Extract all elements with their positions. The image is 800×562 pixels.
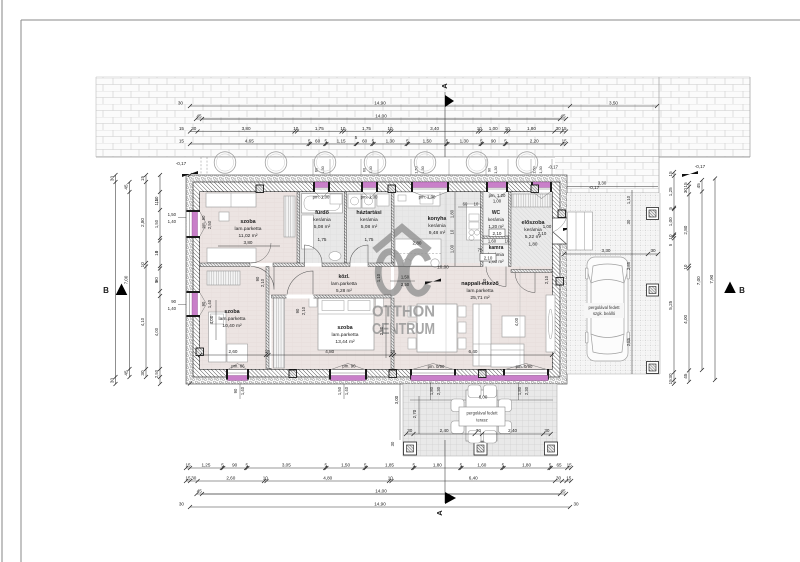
svg-text:2,10: 2,10 — [538, 231, 547, 236]
svg-text:2,80: 2,80 — [379, 326, 384, 335]
svg-text:1,50: 1,50 — [414, 165, 419, 173]
svg-text:1,00: 1,00 — [543, 224, 552, 229]
svg-text:15: 15 — [566, 476, 572, 481]
svg-text:90: 90 — [491, 139, 497, 144]
svg-text:45: 45 — [560, 114, 566, 119]
svg-text:10: 10 — [293, 126, 299, 131]
svg-text:45: 45 — [124, 184, 129, 190]
svg-text:5,28 m²: 5,28 m² — [336, 288, 352, 293]
svg-text:5: 5 — [549, 463, 552, 468]
svg-text:1,80: 1,80 — [433, 463, 442, 468]
svg-text:1,30: 1,30 — [460, 139, 469, 144]
svg-text:25,71 m²: 25,71 m² — [470, 295, 490, 301]
svg-text:10: 10 — [505, 126, 511, 131]
svg-text:6,40: 6,40 — [469, 476, 478, 481]
svg-text:45: 45 — [197, 489, 203, 494]
svg-text:2,30: 2,30 — [436, 386, 441, 395]
svg-text:4,65: 4,65 — [245, 139, 254, 144]
svg-text:2,10: 2,10 — [301, 306, 306, 315]
svg-text:WC: WC — [492, 210, 501, 216]
svg-text:pm. 90: pm. 90 — [342, 364, 356, 369]
svg-text:kerámia: kerámia — [313, 217, 331, 223]
svg-text:1,00: 1,00 — [493, 199, 502, 204]
svg-text:5: 5 — [668, 207, 673, 210]
svg-text:±0,00: ±0,00 — [437, 265, 449, 270]
svg-text:1,75: 1,75 — [318, 237, 327, 242]
svg-text:30: 30 — [390, 441, 395, 446]
svg-text:30: 30 — [178, 101, 184, 106]
svg-text:A: A — [440, 83, 449, 89]
svg-text:szoba: szoba — [240, 219, 256, 225]
svg-text:7,00: 7,00 — [124, 275, 129, 284]
svg-text:45: 45 — [560, 489, 566, 494]
svg-text:5: 5 — [406, 139, 409, 144]
svg-text:10: 10 — [477, 126, 483, 131]
svg-text:65: 65 — [556, 463, 562, 468]
svg-text:1,80: 1,80 — [517, 386, 522, 395]
svg-text:1,75: 1,75 — [365, 237, 374, 242]
svg-text:2,40: 2,40 — [508, 428, 517, 433]
svg-text:5: 5 — [364, 463, 367, 468]
svg-text:5: 5 — [412, 463, 415, 468]
svg-text:1,30: 1,30 — [493, 165, 498, 173]
svg-text:30: 30 — [476, 428, 482, 433]
svg-text:10: 10 — [140, 262, 145, 268]
svg-text:1,40: 1,40 — [344, 386, 349, 395]
svg-text:2,80: 2,80 — [140, 218, 145, 227]
svg-text:kerámia: kerámia — [428, 223, 446, 229]
svg-text:szoba: szoba — [224, 309, 240, 315]
svg-text:5,25: 5,25 — [668, 300, 673, 309]
svg-text:3,80: 3,80 — [242, 126, 251, 131]
svg-text:1,25: 1,25 — [668, 187, 673, 196]
svg-text:4,10: 4,10 — [140, 317, 145, 326]
svg-text:2,40: 2,40 — [440, 428, 449, 433]
svg-text:kerámia: kerámia — [488, 217, 505, 222]
svg-text:7,90: 7,90 — [709, 274, 714, 283]
svg-text:1,10: 1,10 — [376, 273, 381, 282]
svg-text:30: 30 — [110, 378, 115, 384]
svg-text:90: 90 — [233, 388, 238, 393]
svg-text:30: 30 — [544, 428, 550, 433]
svg-text:2,85: 2,85 — [626, 261, 631, 270]
svg-text:lam.parketta: lam.parketta — [467, 288, 494, 294]
svg-text:kamra: kamra — [489, 245, 504, 251]
svg-text:30: 30 — [668, 373, 673, 379]
svg-text:10: 10 — [668, 234, 673, 240]
svg-text:2,50: 2,50 — [207, 220, 212, 229]
svg-text:1,60: 1,60 — [477, 463, 486, 468]
svg-text:15: 15 — [668, 171, 673, 177]
svg-text:30: 30 — [556, 476, 562, 481]
svg-text:1,85: 1,85 — [385, 463, 394, 468]
svg-text:5: 5 — [355, 135, 358, 140]
svg-text:lam.parketta: lam.parketta — [235, 226, 262, 232]
svg-text:1,50: 1,50 — [423, 139, 432, 144]
svg-text:1,00: 1,00 — [450, 244, 455, 253]
svg-text:30: 30 — [179, 502, 185, 507]
svg-text:45: 45 — [683, 373, 688, 379]
svg-text:1,60: 1,60 — [488, 239, 497, 244]
svg-text:szgk. beálló: szgk. beálló — [593, 311, 616, 316]
svg-text:-0,17: -0,17 — [176, 161, 187, 166]
svg-text:2,60: 2,60 — [226, 476, 235, 481]
svg-text:B: B — [103, 286, 109, 295]
svg-text:1,50: 1,50 — [168, 212, 177, 217]
svg-text:75: 75 — [478, 248, 483, 253]
svg-text:45: 45 — [196, 114, 202, 119]
svg-text:15: 15 — [562, 139, 568, 144]
svg-text:A: A — [435, 510, 444, 516]
svg-text:90: 90 — [232, 463, 238, 468]
svg-text:közl.: közl. — [338, 274, 350, 280]
svg-text:5: 5 — [325, 463, 328, 468]
svg-text:2,10: 2,10 — [484, 256, 493, 261]
svg-text:pm. 0/90: pm. 0/90 — [516, 364, 533, 369]
svg-text:5: 5 — [460, 463, 463, 468]
svg-text:30: 30 — [140, 370, 145, 376]
svg-text:30: 30 — [407, 428, 413, 433]
svg-text:5: 5 — [325, 139, 328, 144]
svg-text:15: 15 — [668, 379, 673, 385]
svg-text:2,10: 2,10 — [544, 275, 549, 284]
svg-text:13,44 m²: 13,44 m² — [335, 339, 355, 345]
svg-text:30: 30 — [556, 126, 562, 131]
svg-text:60: 60 — [315, 139, 321, 144]
svg-text:30: 30 — [573, 502, 579, 507]
svg-text:4,80: 4,80 — [323, 476, 332, 481]
svg-text:3,40: 3,40 — [430, 126, 439, 131]
svg-text:terasz: terasz — [476, 418, 487, 423]
svg-text:10: 10 — [265, 349, 271, 354]
svg-text:3,30: 3,30 — [598, 181, 607, 186]
svg-text:fürdő: fürdő — [315, 210, 329, 216]
svg-text:5: 5 — [308, 139, 311, 144]
svg-text:14,90: 14,90 — [374, 101, 386, 106]
svg-text:90: 90 — [201, 301, 206, 306]
svg-text:1,25: 1,25 — [201, 463, 210, 468]
svg-text:2,80: 2,80 — [413, 241, 422, 246]
svg-text:90: 90 — [295, 308, 300, 313]
svg-text:15: 15 — [154, 198, 159, 203]
svg-text:11,02 m²: 11,02 m² — [239, 233, 258, 239]
svg-text:1,40: 1,40 — [168, 306, 177, 311]
svg-text:60: 60 — [463, 202, 468, 207]
svg-text:pm. 90: pm. 90 — [201, 215, 206, 228]
svg-text:10: 10 — [263, 476, 269, 481]
svg-text:1,80: 1,80 — [450, 209, 455, 218]
svg-text:3,50: 3,50 — [609, 101, 618, 106]
svg-text:1,75: 1,75 — [315, 126, 324, 131]
svg-text:5,08 m²: 5,08 m² — [361, 224, 378, 230]
svg-text:45: 45 — [124, 370, 129, 376]
svg-text:-0,17: -0,17 — [695, 164, 706, 169]
svg-text:háztartási: háztartási — [356, 210, 382, 216]
svg-text:1,30: 1,30 — [538, 165, 543, 173]
svg-text:1,40: 1,40 — [240, 386, 245, 395]
svg-text:5: 5 — [372, 139, 375, 144]
svg-text:1,50: 1,50 — [154, 219, 159, 228]
svg-text:10: 10 — [505, 239, 510, 244]
svg-text:1,80: 1,80 — [527, 126, 536, 131]
svg-text:2,60: 2,60 — [229, 349, 238, 354]
svg-text:1,40: 1,40 — [207, 299, 212, 308]
svg-text:30: 30 — [191, 126, 197, 131]
svg-text:1,15: 1,15 — [337, 139, 346, 144]
svg-text:7,00: 7,00 — [696, 276, 701, 285]
svg-text:-0,17: -0,17 — [589, 185, 600, 190]
svg-text:2,85: 2,85 — [626, 337, 631, 346]
svg-text:pm. 1,20: pm. 1,20 — [489, 193, 506, 198]
svg-text:10: 10 — [474, 202, 479, 207]
svg-text:1,80: 1,80 — [429, 386, 434, 395]
svg-text:1,00: 1,00 — [668, 217, 673, 226]
svg-text:6,00: 6,00 — [479, 395, 488, 400]
svg-text:konyha: konyha — [428, 216, 448, 222]
svg-text:15: 15 — [185, 476, 191, 481]
svg-text:30: 30 — [626, 219, 631, 224]
svg-text:15: 15 — [185, 463, 191, 468]
svg-text:1,30: 1,30 — [386, 139, 395, 144]
svg-text:-0,17: -0,17 — [548, 165, 559, 170]
svg-text:10: 10 — [390, 349, 396, 354]
svg-text:2,10: 2,10 — [260, 278, 265, 287]
svg-text:pm. 1,00: pm. 1,00 — [361, 195, 378, 200]
svg-text:nappali-étkező: nappali-étkező — [461, 281, 499, 287]
svg-text:10: 10 — [683, 264, 688, 270]
svg-text:5: 5 — [245, 463, 248, 468]
svg-text:4,80: 4,80 — [325, 349, 334, 354]
svg-text:5,08 m²: 5,08 m² — [314, 224, 331, 230]
svg-text:1,80: 1,80 — [529, 242, 538, 247]
svg-text:2,50: 2,50 — [401, 282, 410, 287]
svg-text:15: 15 — [567, 463, 573, 468]
svg-text:pergolával fedett: pergolával fedett — [589, 305, 621, 310]
svg-text:3,30: 3,30 — [602, 248, 611, 253]
svg-text:45: 45 — [696, 183, 701, 189]
svg-text:2,10: 2,10 — [493, 231, 502, 236]
svg-text:30: 30 — [191, 476, 197, 481]
svg-text:5: 5 — [446, 139, 449, 144]
svg-text:2,70: 2,70 — [412, 409, 417, 418]
svg-text:60: 60 — [362, 139, 368, 144]
svg-text:1,40: 1,40 — [168, 219, 177, 224]
svg-text:pm. 0/90: pm. 0/90 — [428, 364, 445, 369]
svg-text:1,50: 1,50 — [337, 386, 342, 395]
svg-text:10: 10 — [482, 278, 487, 283]
svg-text:1,10: 1,10 — [626, 195, 631, 204]
svg-text:6,40: 6,40 — [469, 349, 478, 354]
svg-text:10: 10 — [388, 476, 394, 481]
svg-text:4,00: 4,00 — [683, 314, 688, 323]
svg-text:14,00: 14,00 — [375, 114, 387, 119]
svg-text:5: 5 — [221, 463, 224, 468]
svg-text:14,00: 14,00 — [375, 489, 387, 494]
svg-text:pm. 1,00: pm. 1,00 — [313, 195, 330, 200]
svg-text:30: 30 — [683, 188, 688, 194]
svg-text:2,80: 2,80 — [683, 225, 688, 234]
svg-text:OTTHON: OTTHON — [372, 304, 435, 321]
svg-text:2,50: 2,50 — [154, 369, 159, 378]
svg-text:1,80: 1,80 — [522, 463, 531, 468]
svg-text:15: 15 — [179, 126, 185, 131]
svg-text:3,80: 3,80 — [244, 240, 253, 245]
svg-text:15: 15 — [683, 182, 688, 188]
svg-text:lam.parketta: lam.parketta — [331, 281, 357, 286]
svg-text:10: 10 — [340, 126, 346, 131]
svg-text:3,00: 3,00 — [394, 395, 399, 404]
svg-text:pm. 86: pm. 86 — [231, 364, 245, 369]
svg-text:1,20 m²: 1,20 m² — [488, 224, 504, 229]
svg-text:1,50: 1,50 — [401, 275, 410, 280]
svg-text:pergolával fedett: pergolával fedett — [467, 411, 499, 416]
svg-text:1,50: 1,50 — [341, 463, 350, 468]
svg-text:14,90: 14,90 — [374, 502, 386, 507]
svg-text:lam.parketta: lam.parketta — [219, 316, 246, 322]
svg-text:10,40 m²: 10,40 m² — [222, 323, 242, 329]
svg-text:pm. 1,00: pm. 1,00 — [419, 195, 436, 200]
svg-text:5: 5 — [502, 463, 505, 468]
svg-text:2,20: 2,20 — [530, 139, 539, 144]
svg-text:lam.parketta: lam.parketta — [332, 332, 359, 338]
svg-text:3,05: 3,05 — [282, 463, 291, 468]
svg-text:kerámia: kerámia — [360, 217, 378, 223]
svg-text:30: 30 — [650, 248, 656, 253]
svg-text:5: 5 — [504, 139, 507, 144]
svg-text:4,00: 4,00 — [514, 317, 519, 326]
svg-text:15: 15 — [561, 126, 567, 131]
svg-text:15: 15 — [179, 139, 185, 144]
svg-text:10: 10 — [387, 126, 393, 131]
svg-text:szoba: szoba — [337, 325, 353, 331]
svg-text:10: 10 — [450, 229, 455, 234]
svg-text:30: 30 — [110, 176, 115, 182]
svg-text:9,48 m²: 9,48 m² — [429, 230, 446, 236]
svg-text:4,00: 4,00 — [154, 327, 159, 336]
svg-text:1,75: 1,75 — [362, 126, 371, 131]
svg-text:1,00: 1,00 — [489, 126, 498, 131]
svg-text:2,30: 2,30 — [524, 386, 529, 395]
svg-text:B: B — [739, 286, 745, 295]
svg-text:15: 15 — [140, 176, 145, 182]
svg-text:5: 5 — [480, 139, 483, 144]
svg-text:4,00: 4,00 — [209, 315, 214, 324]
svg-text:90: 90 — [171, 299, 176, 304]
